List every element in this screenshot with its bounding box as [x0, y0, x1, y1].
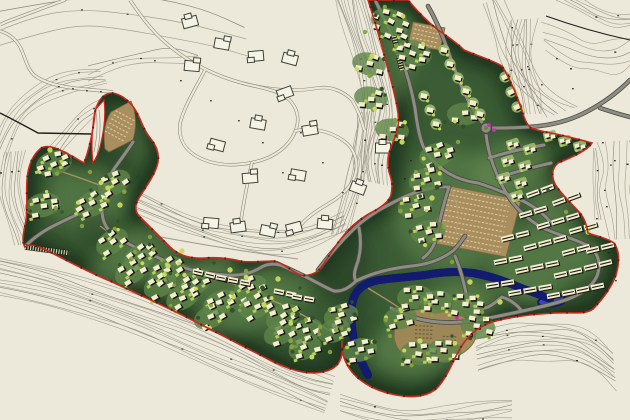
tree-icon: [105, 185, 110, 190]
tree-icon: [294, 314, 297, 317]
elevation-tick: [606, 206, 608, 207]
elevation-tick: [100, 91, 102, 92]
tree-icon: [165, 263, 170, 268]
elevation-tick: [410, 160, 412, 161]
house: [359, 102, 365, 107]
tree-icon: [350, 300, 353, 303]
utility-marker: [492, 128, 496, 132]
existing-building-wing: [270, 223, 278, 229]
existing-building-wing: [321, 215, 328, 221]
tree-icon: [117, 202, 122, 207]
elevation-tick: [570, 68, 572, 69]
tree-icon: [244, 269, 248, 273]
existing-building-wing: [224, 36, 232, 42]
elevation-tick: [556, 58, 558, 59]
utility-marker: [455, 316, 459, 320]
tree-icon: [417, 338, 422, 343]
tree-icon: [198, 278, 201, 281]
existing-building: [247, 50, 264, 62]
tree-icon: [68, 158, 71, 161]
elevation-tick: [18, 171, 20, 172]
elevation-tick: [572, 88, 574, 89]
elevation-tick: [608, 252, 610, 253]
tree-icon: [148, 235, 152, 239]
tree-icon: [363, 30, 367, 34]
elevation-tick: [241, 236, 243, 237]
tree-icon: [60, 210, 63, 213]
house: [462, 110, 469, 115]
elevation-tick: [342, 192, 344, 193]
tree-icon: [467, 279, 472, 284]
tree-icon: [358, 318, 361, 321]
house: [445, 340, 451, 345]
tree-icon: [94, 194, 97, 197]
tree-icon: [420, 240, 423, 243]
elevation-tick: [154, 60, 156, 61]
elevation-tick: [93, 108, 95, 109]
elevation-tick: [203, 236, 205, 237]
elevation-tick: [140, 58, 142, 59]
existing-building-wing: [207, 144, 215, 151]
existing-building-wing: [184, 13, 192, 20]
tree-icon: [546, 188, 549, 191]
tree-icon: [430, 313, 434, 317]
tree-icon: [369, 53, 374, 58]
tree-icon: [429, 195, 434, 200]
elevation-tick: [374, 406, 376, 407]
garden-plot: [462, 334, 466, 337]
elevation-tick: [322, 162, 324, 163]
existing-building-wing: [202, 223, 209, 229]
house: [419, 57, 426, 62]
elevation-tick: [541, 84, 543, 85]
elevation-tick: [595, 340, 597, 341]
house: [415, 351, 422, 356]
house: [404, 288, 410, 293]
existing-building: [288, 169, 306, 183]
tree-icon: [318, 325, 322, 329]
elevation-tick: [617, 15, 619, 16]
existing-building-wing: [288, 174, 296, 180]
elevation-tick: [362, 171, 364, 172]
elevation-tick: [181, 348, 183, 349]
tree-icon: [47, 147, 52, 152]
house: [412, 295, 419, 300]
elevation-tick: [576, 360, 578, 361]
garden-plot: [423, 361, 426, 364]
elevation-tick: [11, 138, 13, 139]
garden-plot: [453, 297, 457, 300]
elevation-tick: [542, 336, 544, 337]
house: [427, 294, 433, 299]
elevation-tick: [91, 294, 93, 295]
house: [437, 291, 443, 296]
elevation-tick: [363, 80, 365, 81]
existing-building-wing: [247, 57, 254, 63]
tree-icon: [452, 341, 457, 346]
garden-plot: [394, 319, 398, 323]
tree-icon: [328, 350, 332, 354]
site-plan-screenshot: [0, 0, 630, 420]
house: [477, 301, 484, 306]
tree-icon: [383, 93, 386, 96]
garden-plot: [449, 358, 452, 361]
tree-icon: [393, 118, 397, 122]
elevation-tick: [89, 300, 91, 301]
garden-plot: [428, 303, 431, 306]
house: [398, 135, 405, 140]
garden-plot: [398, 308, 402, 311]
elevation-tick: [281, 251, 283, 252]
garden-plot: [413, 230, 417, 234]
existing-building-wing: [255, 115, 263, 121]
house: [469, 296, 475, 301]
garden-plot: [432, 238, 436, 242]
tree-icon: [402, 358, 405, 361]
elevation-tick: [510, 70, 512, 71]
elevation-tick: [210, 100, 212, 101]
garden-plot: [386, 328, 390, 332]
existing-building-wing: [379, 140, 386, 145]
garden-plot: [371, 93, 375, 97]
existing-building-wing: [233, 218, 241, 224]
house: [41, 203, 48, 208]
site-plan-map: [0, 0, 630, 420]
elevation-tick: [627, 164, 629, 165]
elevation-tick: [614, 160, 616, 161]
garden-plot: [424, 298, 427, 301]
elevation-tick: [300, 132, 302, 133]
tree-icon: [461, 124, 465, 128]
tree-icon: [88, 170, 92, 174]
elevation-tick: [595, 16, 597, 17]
elevation-tick: [72, 88, 74, 89]
garden-plot: [473, 305, 477, 308]
elevation-tick: [230, 359, 232, 360]
elevation-tick: [508, 349, 510, 350]
tree-icon: [308, 338, 311, 341]
tree-icon: [261, 302, 266, 307]
tree-icon: [179, 248, 184, 253]
elevation-tick: [262, 142, 264, 143]
existing-building-wing: [193, 58, 200, 64]
elevation-tick: [602, 142, 604, 143]
house: [405, 213, 412, 218]
elevation-tick: [356, 203, 358, 204]
elevation-tick: [86, 90, 88, 91]
elevation-tick: [398, 140, 400, 141]
tree-icon: [275, 276, 280, 281]
tree-icon: [402, 348, 406, 352]
house: [349, 358, 356, 363]
elevation-tick: [282, 172, 284, 173]
elevation-tick: [238, 120, 240, 121]
tree-icon: [450, 334, 453, 337]
house: [413, 185, 420, 190]
elevation-tick: [614, 52, 616, 53]
existing-building-wing: [287, 50, 295, 57]
elevation-tick: [277, 232, 279, 233]
elevation-tick: [482, 418, 484, 419]
elevation-tick: [610, 165, 612, 166]
elevation-tick: [58, 86, 60, 87]
elevation-tick: [273, 369, 275, 370]
elevation-tick: [112, 62, 114, 63]
house: [376, 102, 383, 107]
elevation-tick: [381, 165, 383, 166]
house: [409, 342, 415, 347]
elevation-tick: [516, 44, 518, 45]
elevation-tick: [364, 140, 366, 141]
elevation-tick: [374, 122, 376, 123]
tree-icon: [453, 120, 457, 124]
elevation-tick: [78, 72, 80, 73]
tree-icon: [80, 224, 84, 228]
elevation-tick: [528, 69, 530, 70]
garden-plot: [364, 99, 368, 103]
house: [403, 197, 410, 202]
elevation-tick: [62, 90, 64, 91]
garden-plot: [441, 307, 444, 310]
garden-plot: [428, 360, 431, 363]
elevation-tick: [523, 86, 525, 87]
elevation-tick: [604, 190, 606, 191]
garden-plot: [412, 355, 415, 358]
elevation-tick: [506, 330, 508, 331]
elevation-tick: [81, 9, 83, 10]
house: [424, 306, 430, 310]
elevation-tick: [180, 80, 182, 81]
garden-plot: [427, 226, 431, 230]
house: [420, 343, 427, 348]
existing-building: [202, 217, 219, 229]
elevation-tick: [127, 14, 129, 15]
tree-icon: [399, 139, 404, 144]
elevation-tick: [374, 163, 376, 164]
elevation-tick: [615, 280, 617, 281]
garden-plot: [413, 290, 417, 293]
tree-icon: [497, 299, 502, 304]
tree-icon: [116, 219, 119, 222]
existing-building-wing: [250, 169, 257, 175]
garden-plot: [448, 313, 452, 316]
tree-icon: [456, 140, 460, 144]
garden-plot: [466, 299, 470, 302]
elevation-tick: [527, 66, 529, 67]
roundabout-island: [484, 126, 488, 130]
tree-icon: [298, 286, 301, 289]
house: [430, 222, 436, 227]
tree-icon: [212, 261, 215, 264]
existing-building-wing: [310, 120, 318, 126]
elevation-tick: [543, 344, 545, 345]
house: [435, 233, 442, 238]
tree-icon: [409, 363, 413, 367]
house: [474, 309, 480, 314]
utility-marker: [487, 123, 491, 127]
garden-plot: [421, 310, 424, 313]
tree-icon: [133, 250, 137, 254]
house: [462, 302, 468, 307]
elevation-tick: [404, 178, 406, 179]
tree-icon: [230, 291, 234, 295]
elevation-tick: [161, 203, 163, 204]
tree-icon: [334, 328, 338, 332]
house: [368, 97, 374, 102]
tree-icon: [564, 210, 568, 214]
house: [440, 348, 446, 353]
garden-plot: [401, 363, 404, 366]
house: [379, 134, 385, 139]
garden-plot: [409, 299, 413, 302]
elevation-tick: [506, 335, 508, 336]
house: [416, 286, 422, 290]
elevation-tick: [77, 118, 79, 119]
tree-icon: [388, 334, 392, 338]
tree-icon: [443, 120, 446, 123]
tree-icon: [445, 310, 448, 313]
existing-building-wing: [286, 229, 294, 236]
tree-icon: [450, 260, 454, 264]
tree-icon: [426, 351, 430, 355]
elevation-tick: [596, 218, 598, 219]
elevation-tick: [11, 171, 13, 172]
tree-icon: [227, 267, 232, 272]
house: [457, 294, 463, 298]
elevation-tick: [0, 172, 2, 173]
elevation-tick: [56, 79, 58, 80]
house: [431, 357, 437, 362]
tree-icon: [480, 310, 484, 314]
house: [435, 341, 441, 345]
house: [401, 303, 408, 308]
elevation-tick: [202, 229, 204, 230]
house: [390, 127, 396, 131]
